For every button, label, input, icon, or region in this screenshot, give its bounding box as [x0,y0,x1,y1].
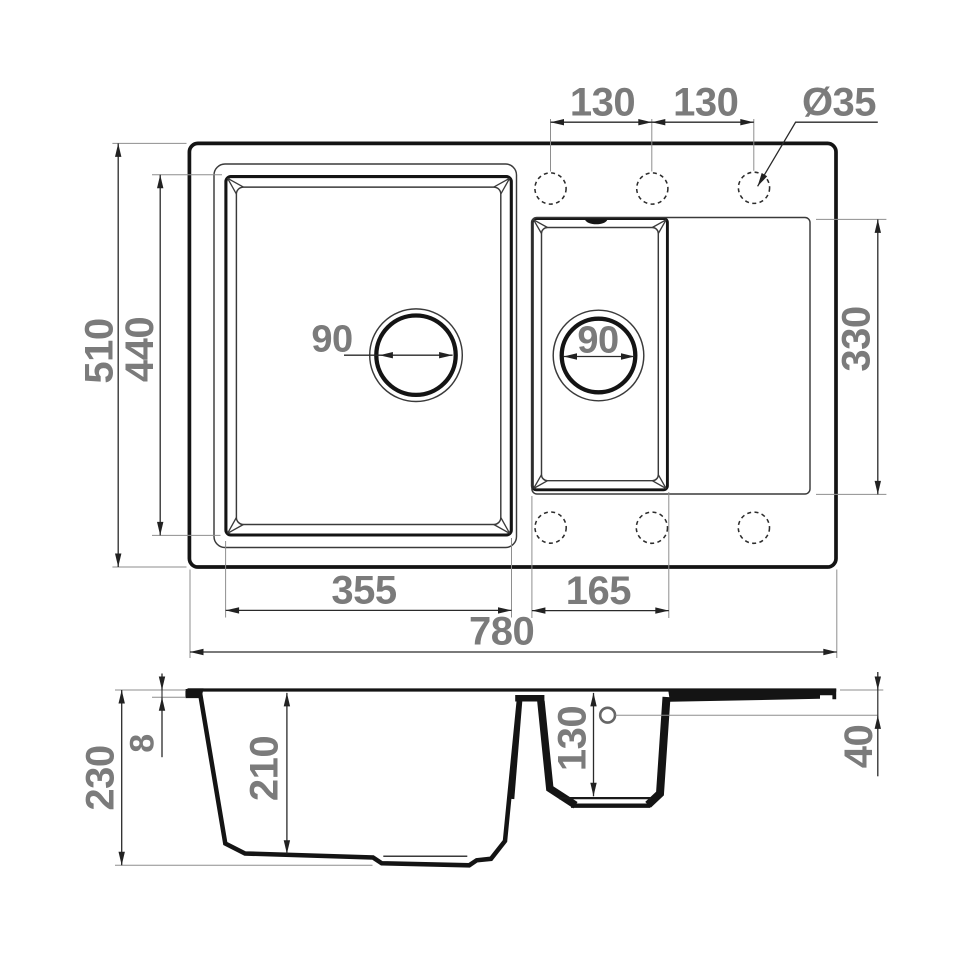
svg-text:8: 8 [124,734,162,752]
svg-text:130: 130 [570,80,635,124]
svg-text:210: 210 [243,736,287,801]
svg-text:165: 165 [566,569,631,613]
svg-text:330: 330 [834,306,878,371]
svg-text:510: 510 [78,318,122,383]
svg-text:90: 90 [311,319,352,361]
svg-text:90: 90 [577,320,618,362]
svg-text:130: 130 [551,706,595,771]
svg-text:130: 130 [673,80,738,124]
svg-text:230: 230 [79,745,123,810]
svg-text:780: 780 [469,610,534,654]
svg-text:440: 440 [118,317,162,382]
svg-text:Ø35: Ø35 [802,80,876,124]
svg-text:355: 355 [331,568,396,612]
svg-text:40: 40 [837,725,881,769]
